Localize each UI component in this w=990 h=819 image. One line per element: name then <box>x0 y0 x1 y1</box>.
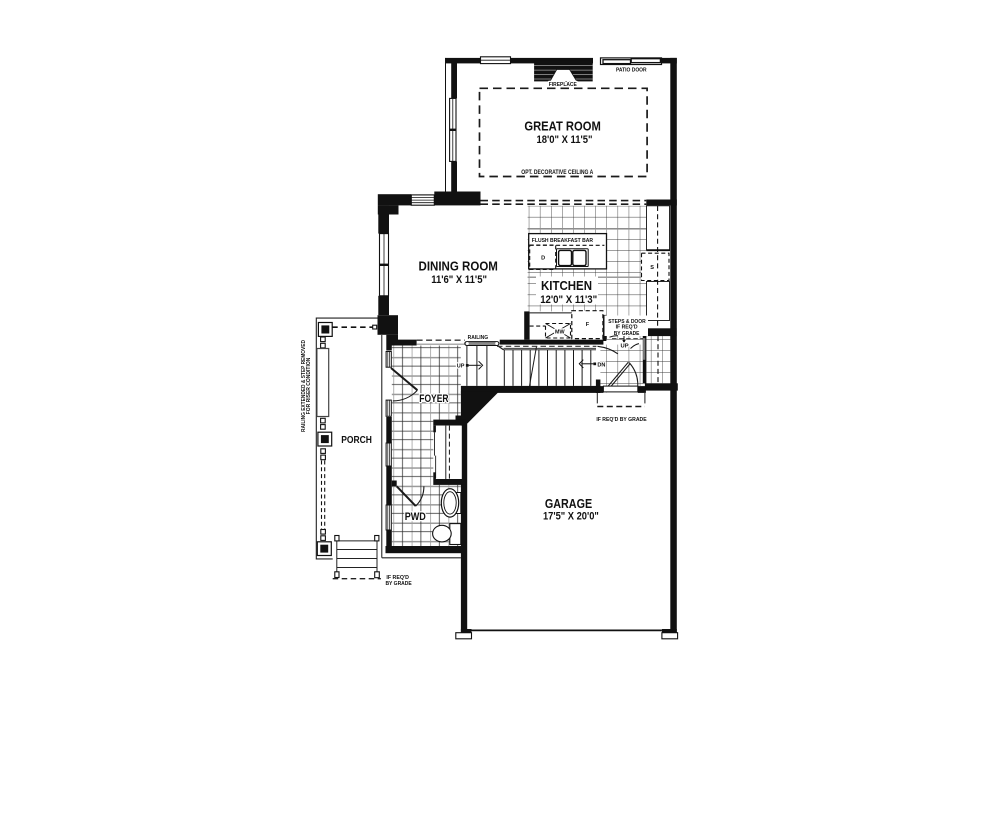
svg-text:12'0" X 11'3": 12'0" X 11'3" <box>540 294 597 306</box>
svg-text:D: D <box>541 256 545 262</box>
svg-text:S: S <box>650 265 654 271</box>
svg-text:UP: UP <box>457 363 465 369</box>
svg-text:PWD: PWD <box>405 511 426 523</box>
svg-text:PATIO DOOR: PATIO DOOR <box>616 68 647 74</box>
svg-text:GARAGE: GARAGE <box>545 497 592 511</box>
svg-text:18'0" X 11'5": 18'0" X 11'5" <box>536 134 592 146</box>
svg-text:PORCH: PORCH <box>341 434 372 446</box>
svg-text:MW: MW <box>555 329 565 335</box>
svg-text:BY GRADE: BY GRADE <box>385 581 412 587</box>
svg-text:GREAT ROOM: GREAT ROOM <box>524 120 601 134</box>
svg-text:IF REQ'D: IF REQ'D <box>616 325 638 331</box>
svg-text:FOYER: FOYER <box>419 393 448 405</box>
svg-text:OPT. DECORATIVE CEILING A: OPT. DECORATIVE CEILING A <box>521 169 593 176</box>
svg-text:FIREPLACE: FIREPLACE <box>549 82 578 88</box>
svg-text:11'6" X 11'5": 11'6" X 11'5" <box>431 274 487 286</box>
svg-text:DINING ROOM: DINING ROOM <box>419 260 498 274</box>
svg-text:DN: DN <box>597 362 605 368</box>
svg-text:KITCHEN: KITCHEN <box>541 279 592 293</box>
svg-text:FLUSH BREAKFAST BAR: FLUSH BREAKFAST BAR <box>532 238 593 244</box>
svg-text:IF REQ'D BY GRADE: IF REQ'D BY GRADE <box>596 417 647 423</box>
svg-text:FOR RISER CONDITION: FOR RISER CONDITION <box>306 358 312 415</box>
svg-text:RAILING: RAILING <box>468 335 489 341</box>
svg-text:UP: UP <box>621 343 629 349</box>
svg-text:F: F <box>586 322 590 328</box>
svg-text:17'5" X 20'0": 17'5" X 20'0" <box>543 510 599 522</box>
